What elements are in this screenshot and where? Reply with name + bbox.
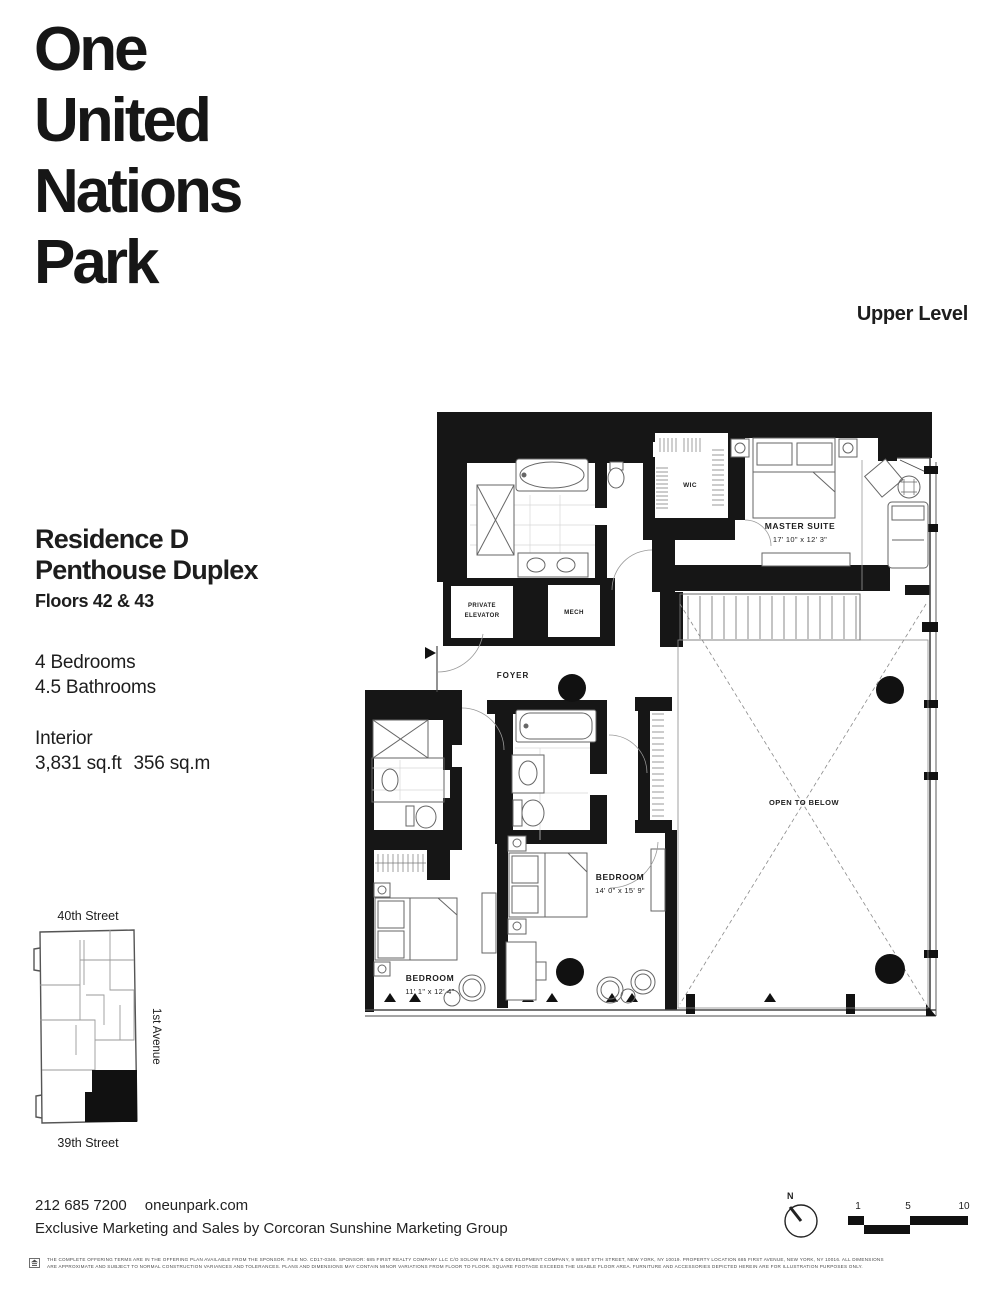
scale-tick-1: 1 [855, 1201, 861, 1212]
bedroom3-dims: 11' 1" x 12' 4" [405, 987, 454, 996]
master-suite-label: MASTER SUITE [765, 521, 835, 531]
wic-label: WIC [683, 482, 697, 489]
phone-number: 212 685 7200 [35, 1197, 127, 1214]
site-key-map: 40th Street 39th Street 1st Avenue [10, 900, 190, 1160]
scale-bar: 1 5 10 [848, 1201, 970, 1234]
bedroom2-dims: 14' 0" x 15' 9" [595, 886, 645, 895]
legal-line-1: THE COMPLETE OFFERING TERMS ARE IN THE O… [47, 1257, 978, 1264]
site-map-subject-building [85, 1070, 137, 1122]
legal-disclaimer: THE COMPLETE OFFERING TERMS ARE IN THE O… [28, 1257, 978, 1270]
foyer-label: FOYER [497, 671, 530, 680]
logo-line-2: United [34, 85, 240, 156]
marketing-line: Exclusive Marketing and Sales by Corcora… [35, 1217, 508, 1240]
bedroom3-label: BEDROOM [406, 973, 455, 983]
logo: One United Nations Park [34, 14, 240, 298]
site-map-lot-lines [40, 930, 134, 1092]
residence-type: Penthouse Duplex [35, 555, 258, 586]
legal-line-2: ARE APPROXIMATE AND SUBJECT TO NORMAL CO… [47, 1264, 978, 1271]
bedroom3-bath [372, 720, 444, 828]
site-map-avenue: 1st Avenue [150, 1008, 162, 1065]
interior-label: Interior [35, 726, 258, 751]
level-label: Upper Level [857, 303, 968, 326]
private-elevator-label-2: ELEVATOR [465, 613, 500, 619]
bedroom2-bath [512, 710, 596, 826]
north-label: N [787, 1191, 794, 1201]
residence-name: Residence D [35, 524, 258, 555]
staircase [680, 594, 860, 640]
contact-line: 212 685 7200oneunpark.com [35, 1194, 508, 1217]
logo-line-3: Nations [34, 156, 240, 227]
residence-floors: Floors 42 & 43 [35, 591, 258, 612]
floor-plan: PRIVATE ELEVATOR MECH WIC FOYER MASTER S… [355, 398, 1000, 1043]
residence-bedrooms: 4 Bedrooms [35, 650, 258, 675]
area-sqm: 356 sq.m [134, 753, 211, 774]
area-sqft: 3,831 sq.ft [35, 753, 122, 774]
master-suite-dims: 17' 10" x 12' 3" [773, 535, 827, 544]
logo-line-1: One [34, 14, 240, 85]
equal-housing-icon [28, 1257, 41, 1269]
footer: 212 685 7200oneunpark.com Exclusive Mark… [35, 1194, 508, 1240]
bedroom2-closet [652, 714, 664, 816]
logo-line-4: Park [34, 227, 240, 298]
site-map-top-street: 40th Street [57, 909, 119, 923]
mech-label: MECH [564, 609, 584, 616]
interior-area: 3,831 sq.ft356 sq.m [35, 751, 258, 776]
residence-info: Residence D Penthouse Duplex Floors 42 &… [35, 524, 258, 776]
bedroom2-label: BEDROOM [596, 872, 645, 882]
open-to-below-label: OPEN TO BELOW [769, 798, 840, 807]
compass-and-scale: N 1 5 10 [770, 1180, 995, 1250]
residence-bathrooms: 4.5 Bathrooms [35, 675, 258, 700]
brochure-page: One United Nations Park Upper Level Resi… [0, 0, 1000, 1291]
scale-tick-10: 10 [958, 1201, 970, 1212]
site-map-bottom-street: 39th Street [57, 1136, 119, 1150]
website-link: oneunpark.com [145, 1197, 248, 1214]
bedroom3-closet [375, 854, 426, 872]
scale-tick-5: 5 [905, 1201, 911, 1212]
private-elevator-label-1: PRIVATE [468, 603, 496, 609]
legal-text: THE COMPLETE OFFERING TERMS ARE IN THE O… [47, 1257, 978, 1270]
columns [556, 674, 905, 986]
bedroom2-furniture [506, 836, 665, 1003]
compass-icon [785, 1205, 817, 1237]
